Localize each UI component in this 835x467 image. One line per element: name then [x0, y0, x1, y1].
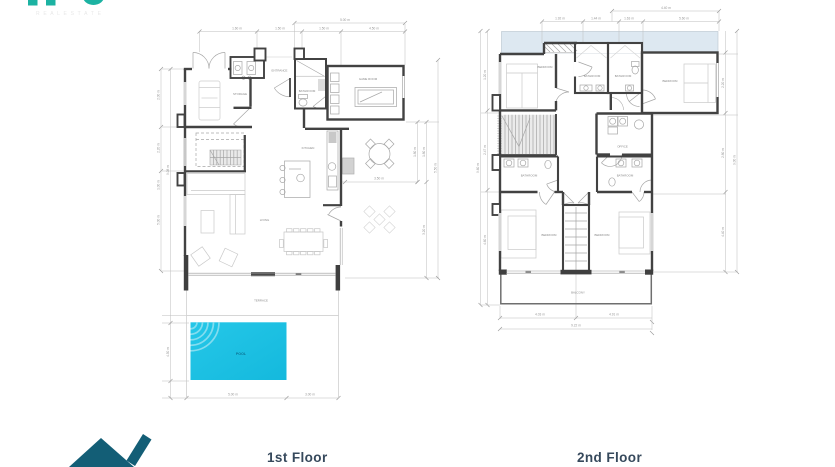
svg-text:9.22 m: 9.22 m	[571, 324, 581, 328]
svg-text:BALCONY: BALCONY	[571, 291, 585, 295]
svg-text:5.60 m: 5.60 m	[679, 17, 689, 21]
svg-text:1.20 m: 1.20 m	[483, 70, 487, 80]
svg-text:2.47 m: 2.47 m	[483, 145, 487, 155]
svg-text:BEDROOM: BEDROOM	[595, 233, 611, 237]
svg-text:3.20 m: 3.20 m	[422, 225, 426, 235]
svg-text:POOL: POOL	[236, 352, 247, 356]
svg-text:9.00 m: 9.00 m	[733, 155, 737, 165]
svg-text:BATHROOM: BATHROOM	[299, 89, 316, 93]
svg-text:3.50 m: 3.50 m	[374, 177, 384, 181]
svg-text:5.00 m: 5.00 m	[340, 18, 350, 22]
svg-text:BATHROOM: BATHROOM	[615, 74, 632, 78]
svg-text:4.40 m: 4.40 m	[721, 227, 725, 237]
svg-text:1.92 m: 1.92 m	[555, 17, 565, 21]
svg-text:5.00 m: 5.00 m	[228, 393, 238, 397]
svg-text:BEDROOM: BEDROOM	[538, 65, 554, 69]
svg-text:BEDROOM: BEDROOM	[663, 79, 679, 83]
svg-text:BEDROOM: BEDROOM	[542, 233, 558, 237]
svg-text:2.00 m: 2.00 m	[157, 90, 161, 100]
svg-text:4.50 m: 4.50 m	[166, 347, 170, 357]
svg-text:4.40 m: 4.40 m	[661, 6, 671, 10]
svg-text:STORAGE: STORAGE	[233, 92, 247, 96]
svg-text:4.60 m: 4.60 m	[483, 235, 487, 245]
svg-text:BATHROOM: BATHROOM	[584, 74, 601, 78]
svg-text:5.50 m: 5.50 m	[434, 163, 438, 173]
svg-text:2.20 m: 2.20 m	[721, 78, 725, 88]
svg-text:GAME ROOM: GAME ROOM	[359, 77, 378, 81]
svg-text:1.50 m: 1.50 m	[275, 27, 285, 31]
svg-text:BATHROOM: BATHROOM	[521, 174, 538, 178]
svg-text:5.00 m: 5.00 m	[157, 215, 161, 225]
svg-text:9.60 m: 9.60 m	[476, 163, 480, 173]
svg-text:4.91 m: 4.91 m	[609, 313, 619, 317]
svg-text:LIVING: LIVING	[260, 218, 270, 222]
svg-text:BATHROOM: BATHROOM	[617, 174, 634, 178]
svg-text:R E A L E S T A T E: R E A L E S T A T E	[36, 11, 102, 17]
svg-text:4.03 m: 4.03 m	[535, 313, 545, 317]
svg-text:KITCHEN: KITCHEN	[302, 146, 315, 150]
svg-text:4.50 m: 4.50 m	[369, 27, 379, 31]
svg-text:9.08 m: 9.08 m	[166, 165, 170, 175]
svg-text:ENTRANCE: ENTRANCE	[272, 69, 288, 73]
svg-text:1.00 m: 1.00 m	[157, 180, 161, 190]
svg-text:TERRACE: TERRACE	[254, 299, 268, 303]
svg-text:1.50 m: 1.50 m	[319, 27, 329, 31]
svg-text:1.44 m: 1.44 m	[591, 17, 601, 21]
svg-text:3.00 m: 3.00 m	[305, 393, 315, 397]
svg-text:1.63 m: 1.63 m	[624, 17, 634, 21]
svg-text:1.80 m: 1.80 m	[413, 147, 417, 157]
svg-text:OFFICE: OFFICE	[617, 145, 628, 149]
svg-text:1.60 m: 1.60 m	[232, 27, 242, 31]
svg-text:1.80 m: 1.80 m	[422, 147, 426, 157]
svg-text:2.80 m: 2.80 m	[721, 148, 725, 158]
svg-text:2.20 m: 2.20 m	[157, 143, 161, 153]
